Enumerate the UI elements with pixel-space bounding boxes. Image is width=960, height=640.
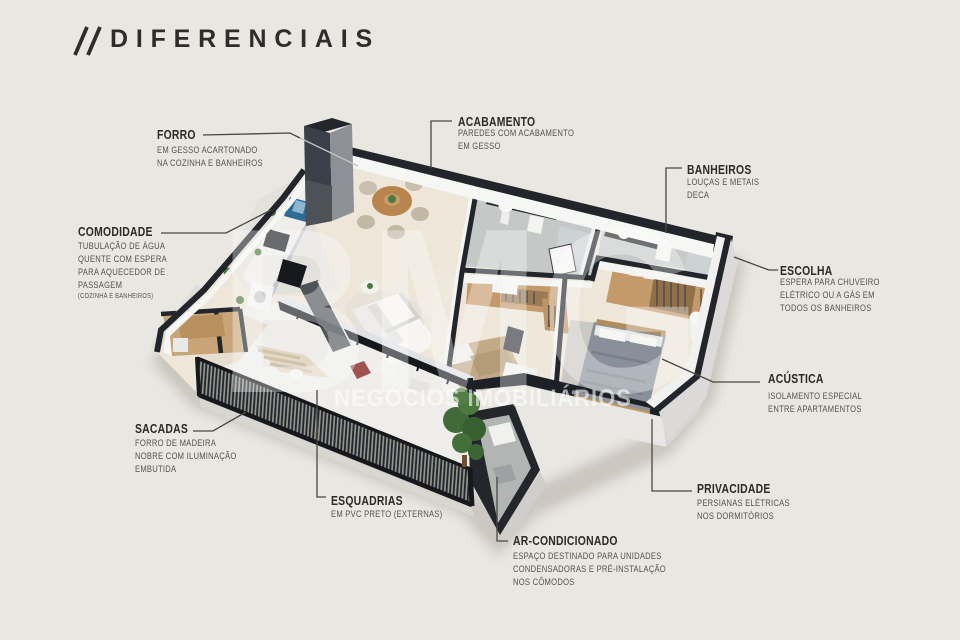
svg-text:NEGÓCIOS IMOBILIÁRIOS: NEGÓCIOS IMOBILIÁRIOS xyxy=(334,383,632,411)
